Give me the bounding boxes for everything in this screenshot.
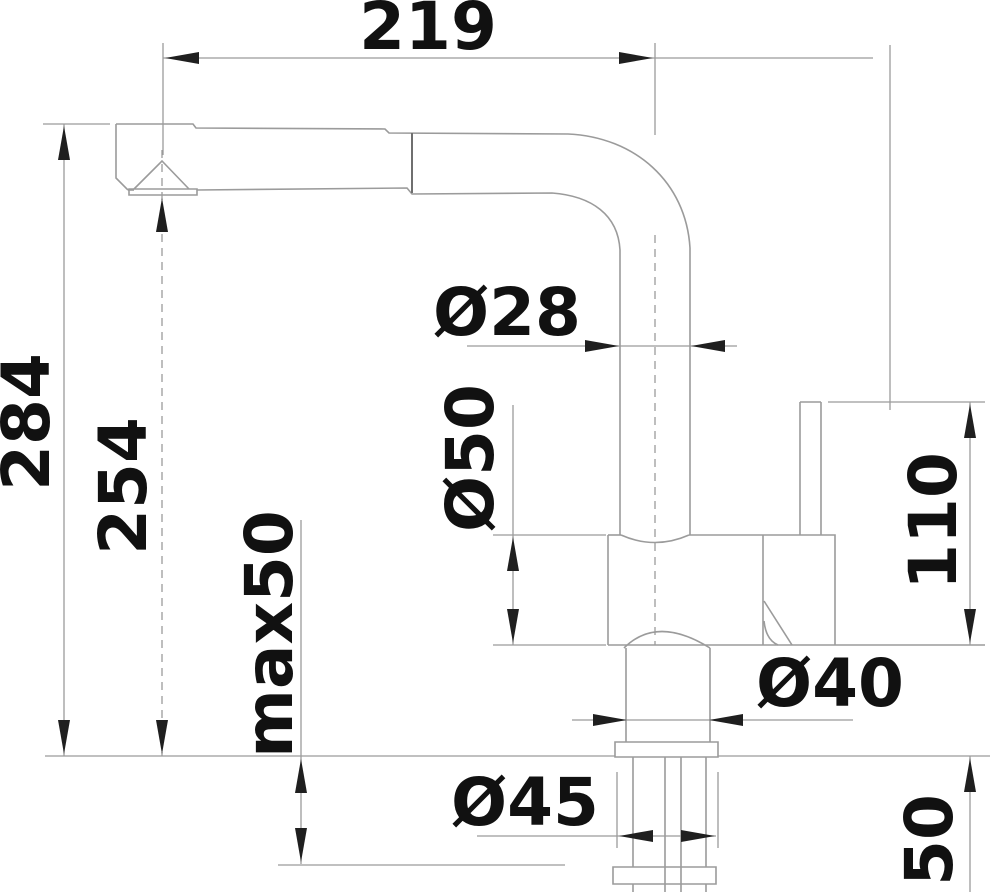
dimension-arrowhead — [165, 52, 199, 64]
dimension-label-total-height: 284 — [0, 353, 60, 491]
dimension-label-flange-diameter: Ø45 — [451, 770, 599, 836]
dimension-arrowhead — [709, 714, 743, 726]
dimension-label-lever-height: 110 — [901, 452, 967, 590]
dimension-arrowhead — [681, 830, 715, 842]
dimension-label-shank-length: 50 — [897, 794, 963, 886]
technical-drawing-canvas: 219 284 254 max50 Ø28 Ø50 Ø40 Ø45 110 50 — [0, 0, 990, 892]
shank — [633, 757, 706, 867]
dimension-arrowhead — [58, 126, 70, 160]
dimension-label-body-diameter: Ø50 — [438, 384, 504, 532]
dimension-arrows — [58, 52, 976, 862]
dimension-label-spout-height: 254 — [91, 417, 157, 555]
hose-lines — [665, 757, 681, 892]
dimension-arrowhead — [964, 609, 976, 643]
handle-block — [763, 535, 835, 645]
faucet-spout — [116, 124, 690, 645]
dimension-arrowhead — [964, 758, 976, 792]
dimension-label-spout-reach: 219 — [359, 0, 497, 60]
dimension-arrowhead — [691, 340, 725, 352]
dimension-label-base-diameter: Ø40 — [756, 651, 904, 717]
handle-notch — [764, 601, 792, 645]
dimension-arrowhead — [507, 609, 519, 643]
dimension-arrowhead — [507, 537, 519, 571]
dimension-arrowhead — [295, 828, 307, 862]
dimension-arrowhead — [619, 830, 653, 842]
dimension-arrowhead — [295, 759, 307, 793]
dimension-arrowhead — [156, 720, 168, 754]
dimension-label-max-mount-thickness: max50 — [237, 510, 303, 758]
dimension-arrowhead — [964, 404, 976, 438]
dimension-arrowhead — [593, 714, 627, 726]
dimension-arrowhead — [58, 720, 70, 754]
dimension-arrowhead — [619, 52, 653, 64]
dimension-label-spout-tube-diameter: Ø28 — [433, 280, 581, 346]
mounting-flange — [615, 742, 718, 757]
dimension-arrowhead — [156, 198, 168, 232]
faucet-base — [613, 632, 718, 892]
dimension-arrowhead — [585, 340, 619, 352]
aerator-bar — [129, 189, 197, 195]
lever-rod — [800, 402, 821, 535]
